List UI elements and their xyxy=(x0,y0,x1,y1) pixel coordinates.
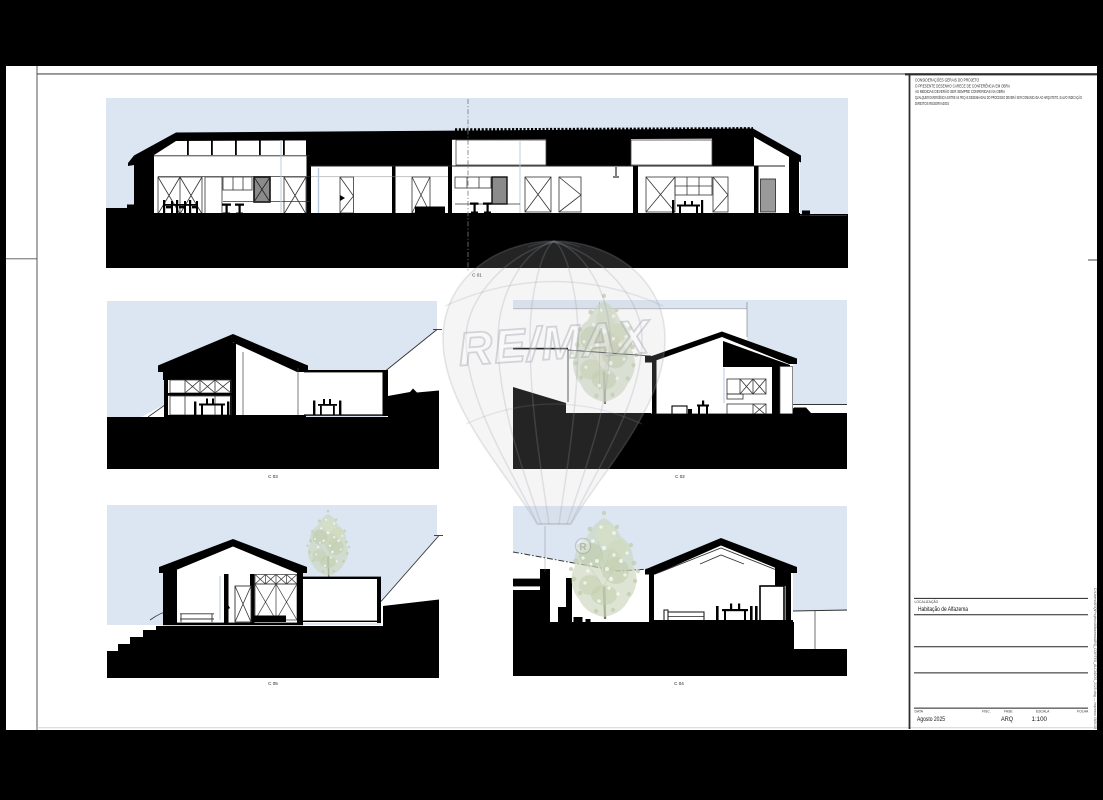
svg-text:FISC.: FISC. xyxy=(982,709,991,713)
svg-text:Habitação de Alfazema: Habitação de Alfazema xyxy=(918,606,968,613)
svg-text:C 04: C 04 xyxy=(674,681,684,686)
svg-text:QUALQUER DIVERGÊNCIA ENTRE AS: QUALQUER DIVERGÊNCIA ENTRE AS PEÇAS DESE… xyxy=(915,95,1082,100)
svg-text:FASE: FASE xyxy=(1004,709,1013,713)
svg-text:AS MEDIDAS DEVERÃO SER SEMPRE: AS MEDIDAS DEVERÃO SER SEMPRE CONFERIDAS… xyxy=(915,89,1005,94)
svg-text:DIREITOS RESERVADOS: DIREITOS RESERVADOS xyxy=(915,101,949,106)
svg-text:DATA: DATA xyxy=(915,709,924,713)
svg-text:C 05: C 05 xyxy=(268,681,278,686)
svg-text:CONSIDERAÇÕES GERAIS DO PROJET: CONSIDERAÇÕES GERAIS DO PROJETO xyxy=(915,78,979,83)
svg-text:1:100: 1:100 xyxy=(1032,716,1048,723)
svg-text:C 03: C 03 xyxy=(268,474,278,479)
svg-text:R: R xyxy=(579,542,587,553)
svg-text:Agosto 2025: Agosto 2025 xyxy=(917,716,945,723)
svg-text:FOLHA: FOLHA xyxy=(1077,709,1089,713)
svg-text:O PRESENTE DESENHO CARECE DE C: O PRESENTE DESENHO CARECE DE CONFERÊNCIA… xyxy=(915,83,1010,88)
svg-text:ARQ: ARQ xyxy=(1001,716,1013,723)
svg-text:C 02: C 02 xyxy=(675,474,685,479)
svg-text:ESCALA: ESCALA xyxy=(1036,709,1050,713)
svg-text:C:\Users\ARQ\Projetos\Alfazema: C:\Users\ARQ\Projetos\Alfazema\ARQ_CORTE… xyxy=(1093,588,1097,729)
svg-text:LOCALIZAÇÃO: LOCALIZAÇÃO xyxy=(915,599,939,604)
